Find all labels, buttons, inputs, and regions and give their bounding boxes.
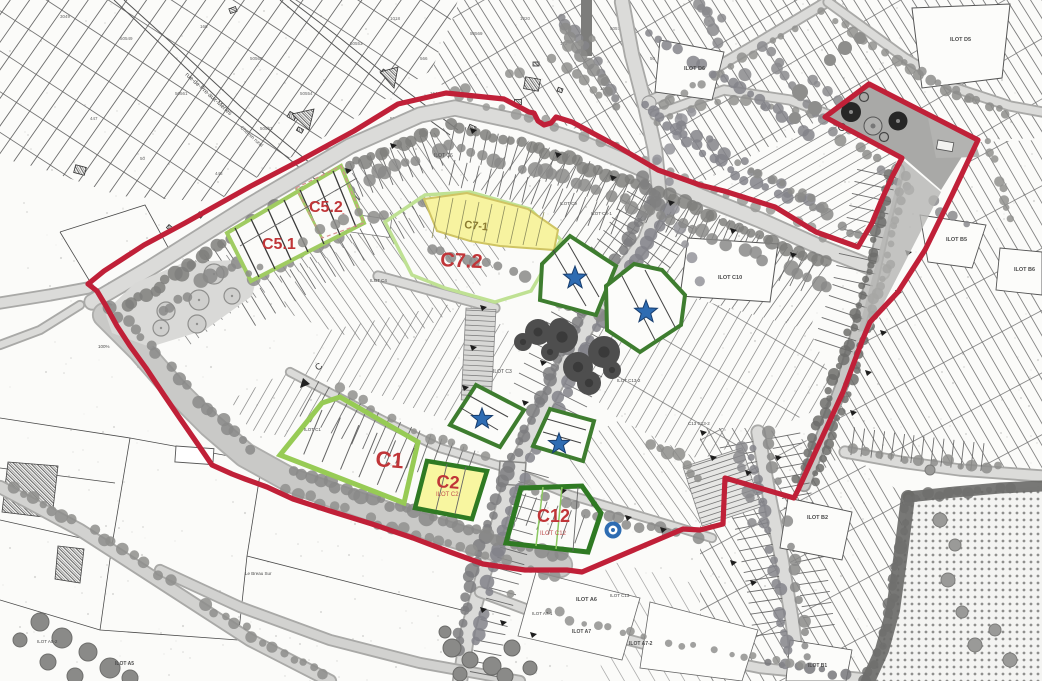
svg-text:ILOT B6: ILOT B6 [1014, 267, 1035, 273]
svg-text:-: - [342, 209, 345, 218]
svg-text:ILOT A7: ILOT A7 [572, 629, 591, 635]
svg-text:ILOT A7-1: ILOT A7-1 [532, 611, 553, 616]
svg-text:ILOT C4: ILOT C4 [370, 278, 387, 283]
svg-text:ILOT C12: ILOT C12 [540, 531, 567, 537]
svg-text:448: 448 [215, 171, 223, 176]
svg-text:50561: 50561 [175, 91, 188, 96]
svg-text:166: 166 [200, 24, 208, 29]
svg-text:ILOT B5: ILOT B5 [946, 237, 967, 243]
svg-text:ILOT A6: ILOT A6 [576, 597, 597, 603]
svg-text:50560: 50560 [250, 56, 263, 61]
svg-text:ILOT C2: ILOT C2 [436, 492, 459, 498]
svg-text:ILOT C13: ILOT C13 [610, 593, 630, 598]
svg-text:ILOT A7-2: ILOT A7-2 [629, 641, 653, 647]
svg-text:ILOT C8-1: ILOT C8-1 [591, 211, 612, 216]
svg-text:ILOT C6: ILOT C6 [434, 153, 453, 159]
svg-text:50563: 50563 [260, 126, 273, 131]
svg-text:50554: 50554 [300, 91, 313, 96]
svg-text:ILOT B2: ILOT B2 [807, 515, 828, 521]
svg-text:C1: C1 [375, 446, 405, 473]
svg-text:ILOT C13-2: ILOT C13-2 [617, 378, 641, 383]
svg-text:C2: C2 [436, 471, 461, 493]
svg-text:ILOT C3: ILOT C3 [493, 369, 512, 375]
svg-text:447: 447 [90, 116, 98, 121]
svg-text:50569: 50569 [470, 31, 483, 36]
svg-text:C5.1: C5.1 [262, 236, 296, 253]
svg-text:ILOT C10: ILOT C10 [718, 275, 742, 281]
svg-text:50: 50 [650, 56, 656, 61]
svg-text:ILOT A5: ILOT A5 [115, 661, 134, 667]
svg-text:ILOT D5: ILOT D5 [950, 37, 971, 43]
svg-text:50549: 50549 [120, 36, 133, 41]
svg-text:1020: 1020 [520, 16, 531, 21]
svg-text:50553: 50553 [350, 41, 363, 46]
svg-text:50: 50 [140, 156, 146, 161]
svg-text:100%: 100% [98, 344, 110, 349]
svg-text:C5.2: C5.2 [309, 199, 343, 216]
svg-text:Le Breau Sur: Le Breau Sur [245, 571, 272, 576]
svg-text:ILOT C9: ILOT C9 [560, 201, 577, 206]
svg-text:C13 C13-2: C13 C13-2 [688, 421, 710, 426]
svg-text:566: 566 [420, 56, 428, 61]
svg-text:ILOT D6: ILOT D6 [684, 66, 705, 72]
svg-text:C7.2: C7.2 [440, 249, 483, 273]
svg-text:1018: 1018 [390, 16, 401, 21]
svg-text:ILOT A5-2: ILOT A5-2 [37, 639, 58, 644]
svg-text:ILOT B1: ILOT B1 [808, 663, 827, 669]
svg-text:3049: 3049 [60, 14, 71, 19]
svg-text:ILOT C1: ILOT C1 [304, 427, 321, 432]
svg-text:C12: C12 [537, 506, 570, 526]
svg-text:C7-1: C7-1 [464, 219, 489, 233]
